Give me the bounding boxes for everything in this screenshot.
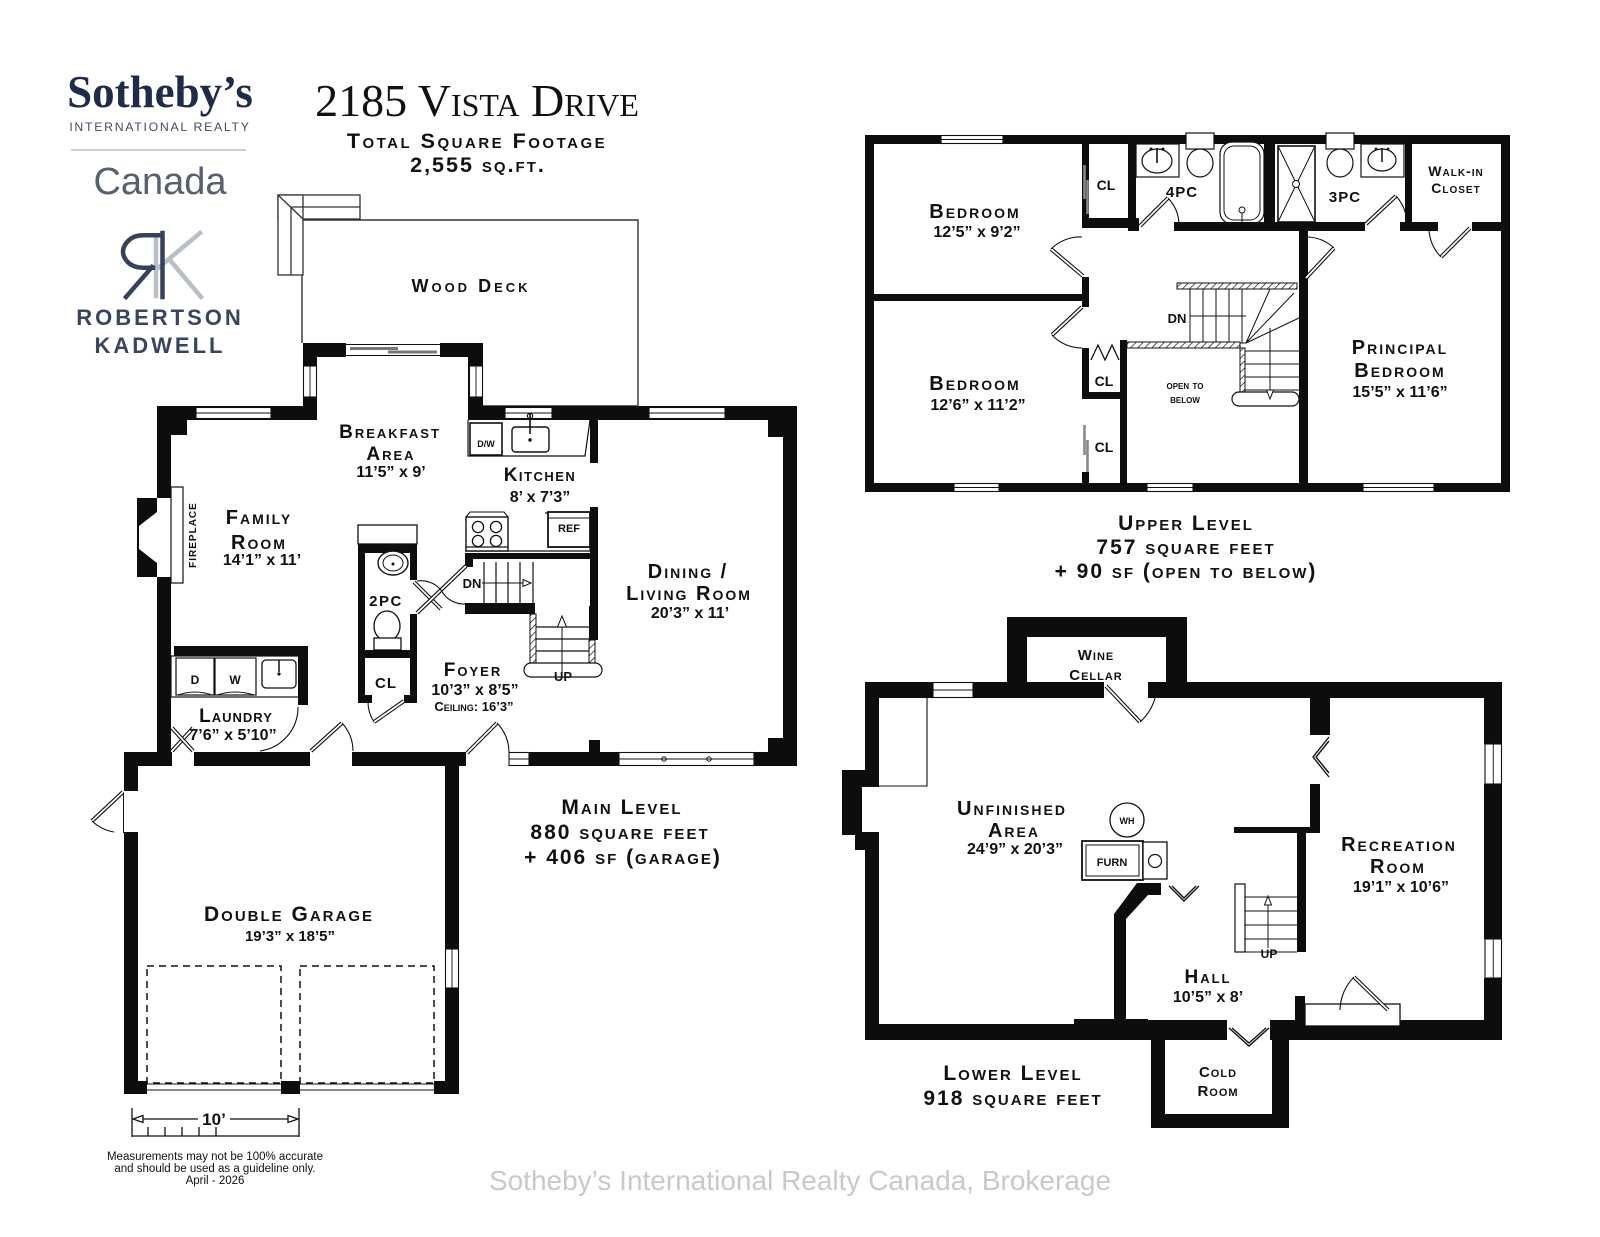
svg-text:14’1” x 11’: 14’1” x 11’ xyxy=(223,552,301,569)
svg-text:10’3” x 8’5”: 10’3” x 8’5” xyxy=(431,682,518,699)
svg-text:757 square feet: 757 square feet xyxy=(1096,536,1275,559)
svg-text:Closet: Closet xyxy=(1431,180,1480,196)
svg-text:Total Square Footage: Total Square Footage xyxy=(347,129,607,153)
svg-text:CL: CL xyxy=(1097,177,1116,193)
svg-text:FURN: FURN xyxy=(1097,857,1128,869)
svg-text:Breakfast: Breakfast xyxy=(339,422,441,443)
svg-text:Lower Level: Lower Level xyxy=(943,1062,1082,1085)
svg-text:2,555 sq.ft.: 2,555 sq.ft. xyxy=(410,153,546,177)
svg-text:Foyer: Foyer xyxy=(444,660,502,681)
svg-text:Ceiling: 16’3”: Ceiling: 16’3” xyxy=(434,699,513,714)
svg-text:Cold: Cold xyxy=(1199,1064,1237,1081)
svg-text:DN: DN xyxy=(1168,311,1187,326)
svg-text:April - 2026: April - 2026 xyxy=(186,1175,245,1187)
svg-text:CL: CL xyxy=(1095,439,1114,455)
svg-text:open to: open to xyxy=(1167,378,1204,392)
svg-text:Room: Room xyxy=(1370,856,1426,878)
svg-text:8’ x 7’3”: 8’ x 7’3” xyxy=(510,489,571,506)
svg-text:Family: Family xyxy=(226,507,292,529)
svg-text:ROBERTSON: ROBERTSON xyxy=(76,305,244,330)
svg-text:Walk-in: Walk-in xyxy=(1428,163,1483,179)
svg-text:Cellar: Cellar xyxy=(1069,667,1123,684)
svg-text:Dining /: Dining / xyxy=(648,561,728,583)
svg-text:Wood Deck: Wood Deck xyxy=(411,276,530,296)
svg-text:2PC: 2PC xyxy=(369,593,403,610)
svg-text:W: W xyxy=(229,673,241,687)
svg-text:4PC: 4PC xyxy=(1166,184,1198,201)
svg-text:Area: Area xyxy=(988,820,1040,842)
svg-text:CL: CL xyxy=(1095,373,1114,389)
svg-text:Bedroom: Bedroom xyxy=(929,373,1020,395)
svg-text:D: D xyxy=(191,673,200,687)
svg-text:+ 90 sf (open to below): + 90 sf (open to below) xyxy=(1055,560,1318,583)
svg-text:D/W: D/W xyxy=(477,439,495,449)
svg-text:WH: WH xyxy=(1120,816,1135,826)
svg-text:Kitchen: Kitchen xyxy=(504,465,577,486)
svg-text:UP: UP xyxy=(554,669,572,684)
svg-text:Upper Level: Upper Level xyxy=(1118,512,1254,535)
svg-text:Measurements may not be 100% a: Measurements may not be 100% accurate xyxy=(107,1151,323,1163)
svg-text:Bedroom: Bedroom xyxy=(1354,360,1445,382)
svg-text:+ 406 sf (garage): + 406 sf (garage) xyxy=(524,846,722,869)
svg-text:Wine: Wine xyxy=(1078,647,1115,664)
svg-text:DN: DN xyxy=(463,576,482,591)
svg-text:Hall: Hall xyxy=(1185,967,1232,988)
svg-text:KADWELL: KADWELL xyxy=(95,333,226,358)
svg-text:19’3” x 18’5”: 19’3” x 18’5” xyxy=(245,928,335,945)
svg-text:Room: Room xyxy=(231,532,287,554)
svg-text:918 square feet: 918 square feet xyxy=(923,1087,1102,1110)
svg-text:7’6” x 5’10”: 7’6” x 5’10” xyxy=(189,727,276,744)
svg-text:Recreation: Recreation xyxy=(1341,834,1457,856)
svg-text:Unfinished: Unfinished xyxy=(957,798,1067,820)
svg-text:3PC: 3PC xyxy=(1329,189,1361,206)
svg-text:12’6” x 11’2”: 12’6” x 11’2” xyxy=(930,397,1025,414)
svg-text:2185 Vista Drive: 2185 Vista Drive xyxy=(315,75,639,126)
svg-text:20’3” x 11’: 20’3” x 11’ xyxy=(651,605,729,622)
svg-text:Double Garage: Double Garage xyxy=(204,903,374,926)
svg-text:11’5” x 9’: 11’5” x 9’ xyxy=(356,464,425,481)
svg-text:UP: UP xyxy=(1261,947,1278,961)
svg-text:Area: Area xyxy=(366,444,415,465)
svg-text:19’1” x 10’6”: 19’1” x 10’6” xyxy=(1353,879,1449,896)
svg-text:880 square feet: 880 square feet xyxy=(530,821,709,844)
svg-text:FIREPLACE: FIREPLACE xyxy=(188,502,199,568)
svg-text:Canada: Canada xyxy=(93,161,227,203)
svg-text:Bedroom: Bedroom xyxy=(929,201,1020,223)
svg-text:Sotheby’s: Sotheby’s xyxy=(67,67,253,117)
svg-text:15’5” x 11’6”: 15’5” x 11’6” xyxy=(1352,384,1447,401)
svg-text:and should be used as a guidel: and should be used as a guideline only. xyxy=(114,1163,315,1175)
svg-text:Room: Room xyxy=(1197,1083,1238,1100)
svg-text:10’: 10’ xyxy=(202,1110,226,1129)
svg-text:CL: CL xyxy=(375,675,397,692)
svg-text:Living Room: Living Room xyxy=(626,583,752,605)
svg-text:12’5” x 9’2”: 12’5” x 9’2” xyxy=(933,224,1020,241)
svg-text:Laundry: Laundry xyxy=(199,706,273,727)
svg-text:10’5” x 8’: 10’5” x 8’ xyxy=(1173,989,1243,1006)
svg-text:Principal: Principal xyxy=(1352,337,1448,359)
svg-text:INTERNATIONAL REALTY: INTERNATIONAL REALTY xyxy=(69,120,250,134)
svg-text:below: below xyxy=(1170,392,1200,406)
svg-text:Sotheby’s International Realty: Sotheby’s International Realty Canada, B… xyxy=(489,1165,1111,1196)
svg-text:REF: REF xyxy=(558,523,580,535)
svg-text:Main Level: Main Level xyxy=(561,796,682,819)
svg-text:24’9” x 20’3”: 24’9” x 20’3” xyxy=(967,841,1063,858)
